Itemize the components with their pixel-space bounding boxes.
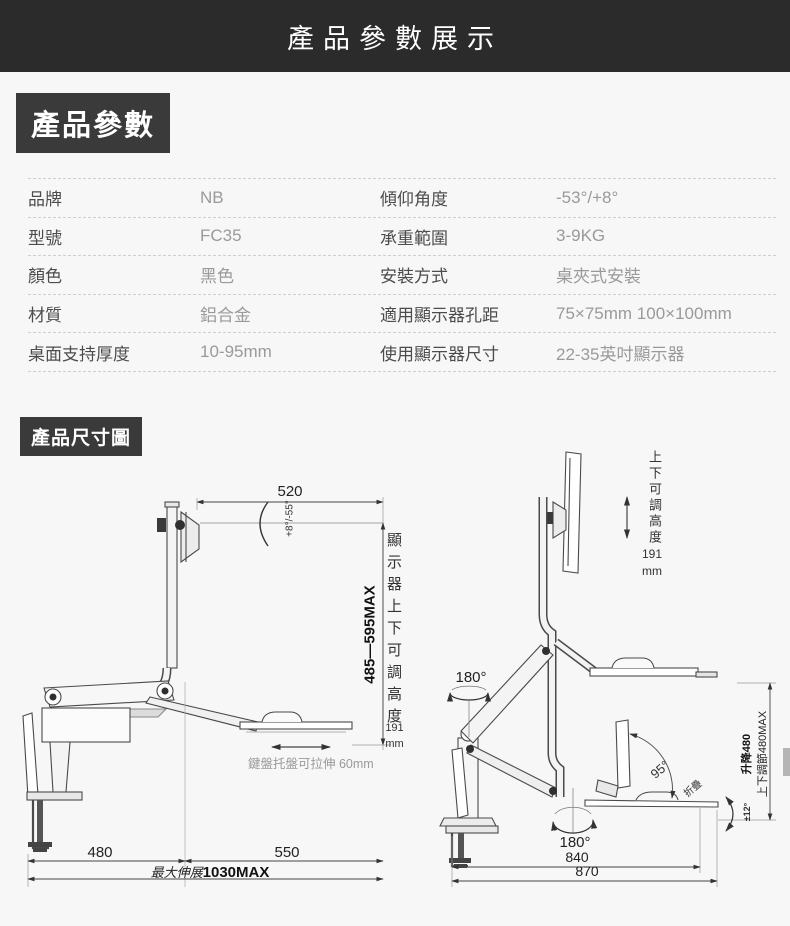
- keyboard-extend-note: 鍵盤托盤可拉伸 60mm: [248, 753, 372, 772]
- spec-value: 鋁合金: [200, 301, 380, 326]
- tilt-12-label: ±12°: [742, 792, 752, 832]
- dim-480-label: 480: [70, 844, 130, 861]
- spec-value: 75×75mm 100×100mm: [556, 304, 776, 324]
- max-extension-prefix: 最大伸展: [151, 866, 203, 881]
- monitor-height-unit: mm: [385, 738, 403, 750]
- lift-height-value: 191: [642, 547, 662, 561]
- spec-value: FC35: [200, 226, 380, 246]
- spec-label: 桌面支持厚度: [28, 340, 200, 365]
- spec-label: 型號: [28, 224, 200, 249]
- table-row: 桌面支持厚度 10-95mm 使用顯示器尺寸 22-35英吋顯示器: [28, 333, 776, 372]
- table-row: 顏色 黑色 安裝方式 桌夾式安裝: [28, 256, 776, 295]
- spec-value: NB: [200, 188, 380, 208]
- max-extension-label: 最大伸展1030MAX: [135, 862, 285, 882]
- dimension-diagram: 520 +8°/-55° 485—595MAX 顯示器上下可調高度 191 mm…: [0, 450, 790, 910]
- table-row: 品牌 NB 傾仰角度 -53°/+8°: [28, 179, 776, 218]
- lift-height-note-text: 上下可調高度: [644, 450, 663, 544]
- spec-value: 10-95mm: [200, 342, 380, 362]
- spec-value: 桌夾式安裝: [556, 262, 776, 287]
- spec-value: 3-9KG: [556, 226, 776, 246]
- left-side-view-art: [23, 502, 352, 852]
- dim-870-label: 870: [557, 863, 617, 879]
- lift-height-unit: mm: [642, 564, 662, 578]
- height-range-label: 485—595MAX: [362, 575, 379, 695]
- spec-label: 傾仰角度: [380, 185, 556, 210]
- dim-550-label: 550: [257, 844, 317, 861]
- page-header: 產品參數展示: [0, 0, 790, 72]
- spec-value: -53°/+8°: [556, 188, 776, 208]
- page-title: 產品參數展示: [287, 17, 503, 56]
- lift-range-label: 上下調節480MAX: [754, 689, 770, 819]
- table-row: 型號 FC35 承重範圍 3-9KG: [28, 218, 776, 257]
- spec-value: 22-35英吋顯示器: [556, 340, 776, 365]
- specs-section-label: 產品參數: [16, 93, 170, 153]
- right-side-view-art: [440, 452, 718, 868]
- spec-label: 安裝方式: [380, 262, 556, 287]
- table-row: 材質 鋁合金 適用顯示器孔距 75×75mm 100×100mm: [28, 295, 776, 334]
- swivel-180-top-label: 180°: [441, 669, 501, 686]
- spec-label: 使用顯示器尺寸: [380, 340, 556, 365]
- spec-label: 顏色: [28, 262, 200, 287]
- max-extension-value: 1030MAX: [203, 864, 270, 881]
- monitor-height-note-text: 顯示器上下可調高度: [384, 532, 405, 718]
- product-spec-page: 產品參數展示 產品參數 品牌 NB 傾仰角度 -53°/+8° 型號 FC35 …: [0, 0, 790, 926]
- scrollbar-artifact[interactable]: [783, 748, 790, 776]
- specs-table: 品牌 NB 傾仰角度 -53°/+8° 型號 FC35 承重範圍 3-9KG 顏…: [28, 178, 776, 372]
- spec-label: 品牌: [28, 185, 200, 210]
- monitor-height-value: 191: [385, 722, 403, 734]
- spec-value: 黑色: [200, 262, 380, 287]
- lift-480-label: 升降480: [738, 709, 754, 799]
- monitor-height-note: 顯示器上下可調高度 191 mm: [384, 532, 405, 750]
- spec-label: 適用顯示器孔距: [380, 301, 556, 326]
- lift-height-note: 上下可調高度 191 mm: [642, 450, 663, 578]
- spec-label: 材質: [28, 301, 200, 326]
- tilt-angle-label: +8°/-55°: [285, 487, 296, 551]
- spec-label: 承重範圍: [380, 224, 556, 249]
